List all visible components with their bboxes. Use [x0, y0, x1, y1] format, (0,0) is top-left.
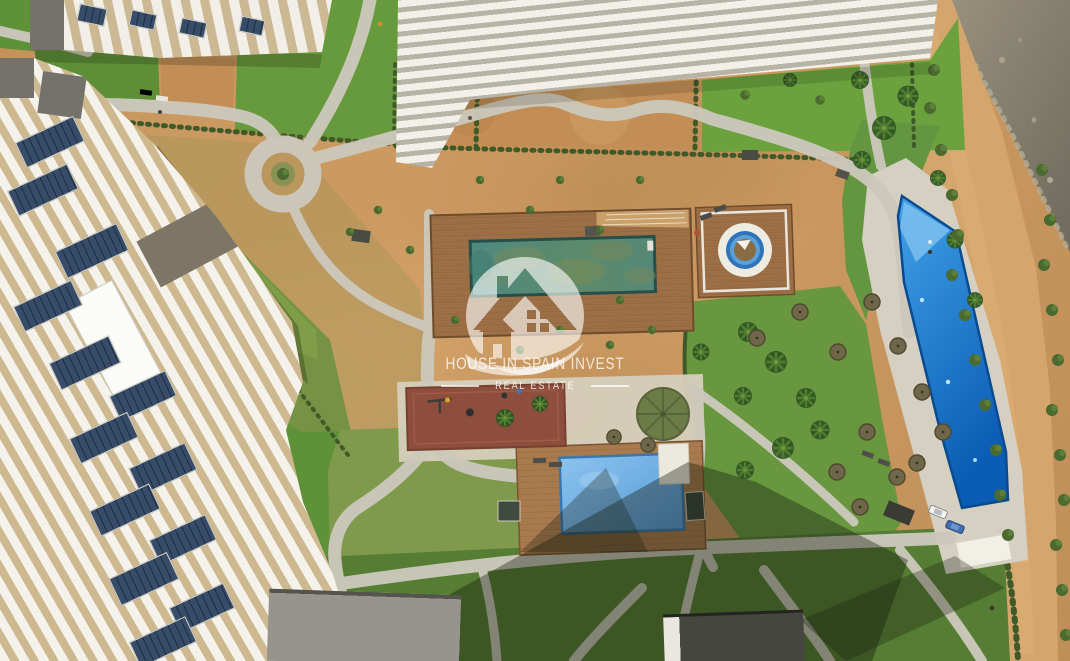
main-pool-complex	[430, 209, 693, 338]
building-bottom-center	[267, 589, 461, 661]
lounger	[533, 458, 546, 463]
person	[378, 22, 382, 26]
pool-ladder	[647, 241, 653, 251]
solar-panel	[13, 280, 83, 332]
grey-roof-section	[37, 71, 86, 119]
solar-panel	[109, 552, 180, 606]
aerial-photo: HOUSE IN SPAIN INVEST REAL ESTATE	[0, 0, 1070, 661]
solar-panel	[7, 163, 79, 216]
person	[990, 606, 994, 610]
spa-platform	[695, 204, 794, 297]
solar-panel	[69, 412, 139, 464]
person	[158, 110, 162, 114]
building-bottom-right	[663, 610, 805, 661]
solar-panel	[89, 483, 161, 536]
playground	[406, 384, 566, 450]
person	[928, 250, 932, 254]
grey-roof-section	[30, 0, 64, 50]
solar-panel	[15, 116, 85, 168]
red-equipment	[694, 230, 700, 236]
lounger	[549, 462, 562, 467]
solar-panel	[55, 223, 129, 279]
green-parasol	[637, 388, 689, 440]
grey-roof-section	[0, 58, 34, 98]
person	[468, 116, 472, 120]
solar-panel	[129, 616, 197, 661]
